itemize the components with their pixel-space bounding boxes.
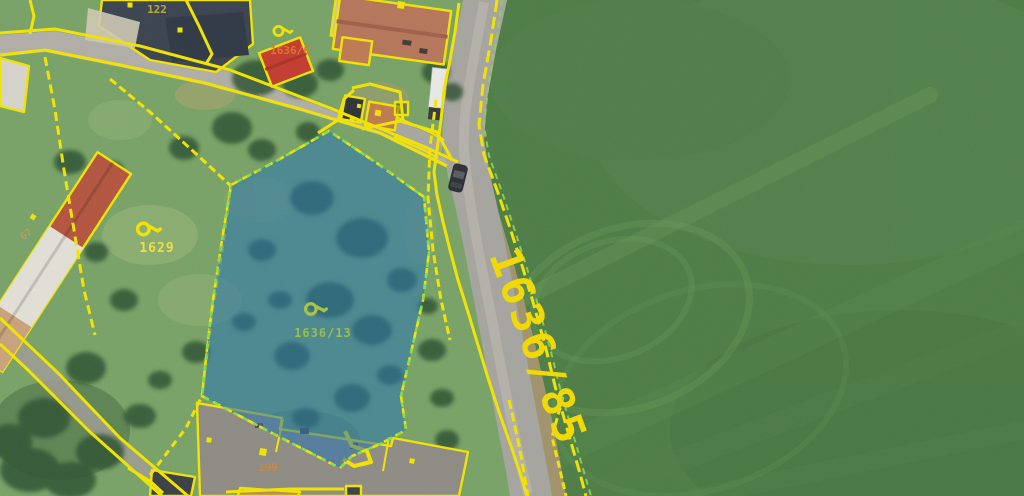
- cadastral-map[interactable]: 1221636/66716291636/131991636/85: [0, 0, 1024, 496]
- map-viewport[interactable]: 1221636/66716291636/131991636/85: [0, 0, 1024, 496]
- photo-grain: [0, 0, 1024, 496]
